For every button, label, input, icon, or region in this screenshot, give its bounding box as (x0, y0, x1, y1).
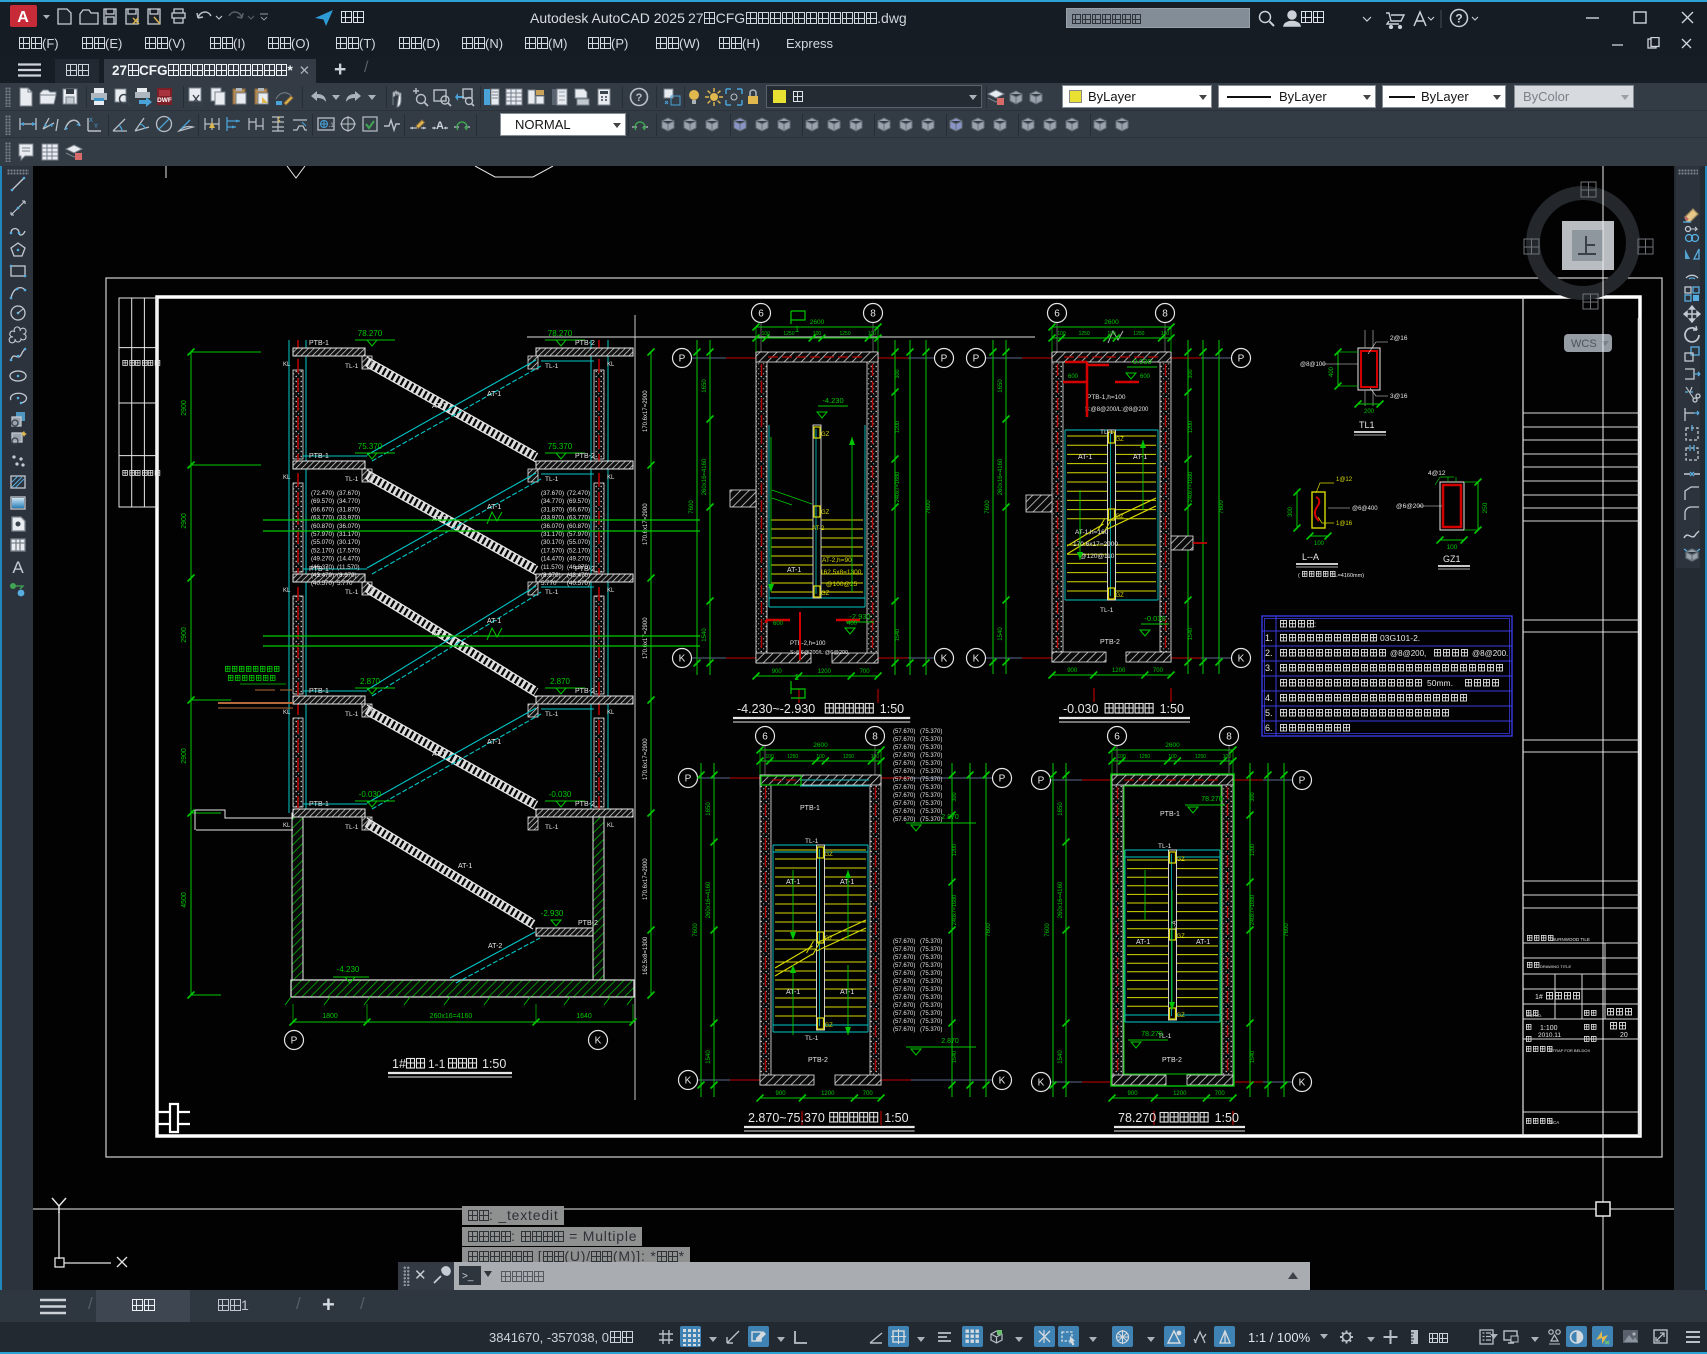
svg-text:78.270: 78.270 (1141, 1031, 1163, 1038)
svg-text:PTB-1: PTB-1 (1160, 811, 1180, 818)
svg-text:2600: 2600 (813, 742, 828, 749)
svg-text:400: 400 (1329, 366, 1335, 377)
svg-text:1800: 1800 (322, 1013, 338, 1020)
svg-text:240x7=1680: 240x7=1680 (895, 472, 901, 502)
svg-text:PTB-1: PTB-1 (309, 340, 329, 347)
svg-text:2.870: 2.870 (550, 677, 571, 686)
svg-text:240x7=1680: 240x7=1680 (1188, 472, 1194, 502)
svg-text:2.: 2. (1265, 648, 1273, 658)
svg-text:AT-1: AT-1 (840, 879, 854, 886)
svg-text:2600: 2600 (810, 319, 825, 326)
svg-text:162.5x8=1300: 162.5x8=1300 (643, 936, 649, 975)
svg-text:TL-1: TL-1 (345, 476, 359, 483)
svg-text:AT-1: AT-1 (432, 403, 446, 410)
svg-text:400: 400 (847, 621, 858, 627)
svg-text:TL-1: TL-1 (545, 824, 559, 831)
svg-text:(57.970): (57.970) (311, 531, 334, 538)
svg-text:170.6x17=2900: 170.6x17=2900 (643, 390, 649, 432)
svg-text:(57.670): (57.670) (893, 987, 915, 993)
svg-text::L=4160mm): :L=4160mm) (1333, 573, 1364, 579)
svg-text:WCS: WCS (1571, 338, 1597, 350)
svg-text:4500: 4500 (181, 892, 188, 908)
svg-text:PTB-2: PTB-2 (1162, 1057, 1182, 1064)
svg-text:100: 100 (1161, 331, 1170, 337)
svg-text::: : (1314, 620, 1316, 629)
svg-text:2900: 2900 (181, 627, 188, 643)
svg-text:L-A: L-A (1172, 921, 1178, 930)
svg-text:-4.230~-2.930: -4.230~-2.930 (737, 702, 815, 716)
svg-text:AT-2: AT-2 (488, 943, 502, 950)
svg-text:1:100: 1:100 (1540, 1025, 1558, 1032)
svg-text:4@12: 4@12 (1428, 470, 1446, 477)
svg-text:78.270: 78.270 (1201, 796, 1223, 803)
svg-text:GZ: GZ (1177, 857, 1186, 863)
svg-text:1200: 1200 (821, 1091, 835, 1097)
svg-text:50mm.: 50mm. (1427, 678, 1453, 688)
svg-text:(11.570): (11.570) (541, 564, 564, 571)
svg-text:KL: KL (607, 588, 615, 594)
svg-text:A: A (12, 558, 24, 577)
svg-text:AT-1: AT-1 (432, 751, 446, 758)
svg-text:KL: KL (283, 823, 291, 829)
svg-text:(75.370): (75.370) (920, 801, 942, 807)
svg-text:KL: KL (607, 475, 615, 481)
svg-text:TL1: TL1 (1359, 420, 1375, 430)
svg-text:100: 100 (813, 331, 822, 337)
svg-text:78.270: 78.270 (1118, 1111, 1156, 1125)
svg-text:A: A (436, 120, 444, 132)
svg-text:(11.570): (11.570) (337, 564, 360, 571)
svg-text:300: 300 (895, 369, 901, 378)
svg-text:KL: KL (607, 710, 615, 716)
svg-text:(37.670): (37.670) (541, 490, 564, 497)
svg-text:5.770: 5.770 (337, 580, 353, 587)
svg-text:AT-1: AT-1 (1078, 454, 1092, 461)
svg-text:?: ? (1455, 12, 1462, 26)
svg-text:(57.670): (57.670) (893, 1027, 915, 1033)
svg-text:AT-1: AT-1 (840, 989, 854, 996)
svg-text:AT-1: AT-1 (487, 618, 501, 625)
svg-text:1:50: 1:50 (884, 1111, 908, 1125)
svg-text:260x16=4160: 260x16=4160 (430, 1013, 473, 1020)
svg-text:100: 100 (1118, 754, 1127, 760)
svg-text:(14.470): (14.470) (541, 556, 564, 563)
svg-text:(57.670): (57.670) (893, 745, 915, 751)
svg-text:1200: 1200 (952, 844, 958, 856)
svg-text:100: 100 (871, 754, 880, 760)
svg-text:2.870: 2.870 (941, 1038, 959, 1045)
svg-text:600: 600 (773, 621, 784, 627)
svg-text:GZ: GZ (821, 510, 830, 516)
svg-text:AT-1: AT-1 (1136, 939, 1150, 946)
svg-text:2600: 2600 (1165, 742, 1180, 749)
svg-text:03G101-2.: 03G101-2. (1380, 633, 1420, 643)
svg-text:PTB-2,h=100: PTB-2,h=100 (790, 641, 826, 647)
svg-text:1250: 1250 (1195, 754, 1206, 760)
svg-text:8: 8 (872, 732, 878, 743)
svg-text:(57.670): (57.670) (893, 939, 915, 945)
svg-text:(75.370): (75.370) (920, 777, 942, 783)
svg-text:GZ: GZ (825, 1023, 834, 1029)
svg-text:4.: 4. (1265, 693, 1273, 703)
svg-text:7600: 7600 (985, 500, 991, 514)
svg-text:2600: 2600 (1104, 319, 1119, 326)
svg-text:STRAP FOR BELDOX: STRAP FOR BELDOX (1550, 1048, 1590, 1053)
svg-text:100: 100 (1057, 331, 1066, 337)
svg-text:(31.870): (31.870) (337, 506, 360, 513)
svg-text:(57.670): (57.670) (893, 793, 915, 799)
svg-text:TL-1: TL-1 (345, 363, 359, 370)
svg-text:(75.370): (75.370) (920, 1003, 942, 1009)
svg-text:GZ: GZ (1177, 934, 1186, 940)
svg-text:PTB-2: PTB-2 (575, 453, 595, 460)
svg-text:(57.670): (57.670) (893, 995, 915, 1001)
svg-text:TL-1: TL-1 (545, 476, 559, 483)
svg-text:SCA: SCA (1550, 1120, 1559, 1125)
svg-text:75.370: 75.370 (548, 442, 573, 451)
svg-text:@8@200,: @8@200, (1390, 649, 1426, 658)
svg-text:1540: 1540 (706, 1050, 712, 1064)
svg-text:KL: KL (283, 475, 291, 481)
svg-text:900: 900 (1067, 668, 1078, 674)
svg-text:TL-1: TL-1 (1158, 843, 1172, 850)
svg-text:1540: 1540 (1188, 628, 1194, 640)
svg-text:1@16: 1@16 (1336, 521, 1353, 527)
svg-text:600: 600 (1140, 374, 1151, 380)
svg-text:(75.370): (75.370) (920, 1011, 942, 1017)
svg-text:(57.670): (57.670) (893, 1003, 915, 1009)
svg-text:-0.030: -0.030 (359, 790, 382, 799)
svg-text:(75.370): (75.370) (920, 793, 942, 799)
svg-text:(43.470): (43.470) (311, 572, 334, 579)
svg-text:900: 900 (1128, 1091, 1139, 1097)
svg-text:100: 100 (1314, 541, 1325, 547)
svg-text:300: 300 (1188, 369, 1194, 378)
svg-text:(69.570): (69.570) (311, 498, 334, 505)
svg-text:GZ: GZ (821, 591, 830, 597)
svg-text:1: 1 (795, 325, 800, 334)
svg-text:(69.570): (69.570) (567, 498, 590, 505)
svg-text:78.270: 78.270 (548, 329, 573, 338)
svg-text:260x16=4160: 260x16=4160 (998, 458, 1004, 495)
svg-text:(75.370): (75.370) (920, 817, 942, 823)
svg-text:1:50: 1:50 (482, 1057, 506, 1071)
svg-text:@8@100: @8@100 (1300, 362, 1326, 368)
svg-text:2.870~75.370: 2.870~75.370 (748, 1111, 825, 1125)
svg-text:PTB-2: PTB-2 (578, 920, 598, 927)
svg-text:2010.11: 2010.11 (1538, 1032, 1561, 1039)
svg-text:(75.370): (75.370) (920, 729, 942, 735)
svg-text:78.270: 78.270 (358, 329, 383, 338)
svg-text:(75.370): (75.370) (920, 987, 942, 993)
svg-text:1:50: 1:50 (1160, 702, 1184, 716)
svg-text:GZ1: GZ1 (1443, 554, 1461, 564)
svg-text:(75.370): (75.370) (920, 947, 942, 953)
svg-text:100: 100 (1107, 331, 1116, 337)
svg-text:K: K (941, 654, 948, 665)
svg-text:(57.670): (57.670) (893, 785, 915, 791)
svg-text:(75.370): (75.370) (920, 939, 942, 945)
svg-text:PTB-2: PTB-2 (1100, 639, 1120, 646)
svg-text:K: K (595, 1036, 602, 1047)
svg-text:240x7=1680: 240x7=1680 (1250, 895, 1256, 925)
svg-text:PTB-2: PTB-2 (575, 801, 595, 808)
svg-text:P: P (1038, 776, 1045, 787)
svg-text:TL-1: TL-1 (545, 589, 559, 596)
svg-text:1200: 1200 (1173, 1091, 1187, 1097)
svg-text:250: 250 (1482, 502, 1489, 513)
svg-text:@120@110: @120@110 (1080, 553, 1115, 560)
svg-text:(57.670): (57.670) (893, 947, 915, 953)
svg-text:(75.370): (75.370) (920, 761, 942, 767)
svg-text:300: 300 (952, 792, 958, 801)
svg-text:TL-1: TL-1 (1100, 429, 1114, 436)
svg-text:162.5x8=1300: 162.5x8=1300 (820, 569, 862, 576)
svg-text:(17.570): (17.570) (337, 547, 360, 554)
svg-text:(31.870): (31.870) (541, 506, 564, 513)
svg-text:1640: 1640 (576, 1013, 592, 1020)
svg-text:7600: 7600 (986, 923, 992, 937)
svg-text:5.770: 5.770 (541, 580, 557, 587)
svg-text:P: P (1299, 776, 1306, 787)
svg-text:AT-1: AT-1 (487, 739, 501, 746)
svg-text:GZ: GZ (1116, 437, 1125, 443)
svg-text:700: 700 (860, 669, 871, 675)
svg-text:1650: 1650 (1058, 802, 1064, 816)
svg-text:TL-1: TL-1 (345, 711, 359, 718)
svg-text:L--A: L--A (1302, 552, 1319, 562)
svg-text:2900: 2900 (181, 513, 188, 529)
svg-text:1650: 1650 (998, 379, 1004, 393)
svg-text:BURNWOOD TILE: BURNWOOD TILE (1552, 937, 1590, 942)
svg-text:KL: KL (607, 823, 615, 829)
svg-text:PTB-2: PTB-2 (575, 688, 595, 695)
svg-text:700: 700 (863, 1091, 874, 1097)
svg-text:(57.670): (57.670) (893, 729, 915, 735)
svg-text:20: 20 (1620, 1032, 1628, 1039)
svg-text:(34.770): (34.770) (541, 498, 564, 505)
svg-text:(57.670): (57.670) (893, 1011, 915, 1017)
svg-text:(46.370): (46.370) (311, 564, 334, 571)
svg-text:-0.030: -0.030 (1144, 614, 1165, 623)
svg-text:AT-1: AT-1 (487, 391, 501, 398)
svg-text:-0.030: -0.030 (1063, 702, 1098, 716)
svg-text:-2.930: -2.930 (541, 909, 564, 918)
svg-text:(72.470): (72.470) (311, 490, 334, 497)
svg-text:@6@200: @6@200 (1396, 503, 1424, 510)
svg-text:DRAWING TITLE: DRAWING TITLE (1540, 964, 1571, 969)
svg-text:KL: KL (283, 588, 291, 594)
svg-text:AT-2: AT-2 (812, 526, 825, 532)
svg-text:(57.670): (57.670) (893, 737, 915, 743)
svg-text:1540: 1540 (1250, 1051, 1256, 1063)
svg-text:AT-1: AT-1 (458, 863, 472, 870)
svg-text:(14.470): (14.470) (337, 556, 360, 563)
svg-text:(52.170): (52.170) (567, 547, 590, 554)
svg-text:TL-1: TL-1 (345, 824, 359, 831)
svg-text:AT-2,h=90: AT-2,h=90 (822, 557, 852, 564)
svg-text:8: 8 (1162, 309, 1168, 320)
svg-text:6: 6 (758, 309, 764, 320)
svg-text:600: 600 (1068, 374, 1079, 380)
svg-text:PTB-1: PTB-1 (309, 688, 329, 695)
svg-text:(75.370): (75.370) (920, 785, 942, 791)
svg-text:2900: 2900 (181, 748, 188, 764)
svg-text:PTB-1,h=100: PTB-1,h=100 (1087, 394, 1126, 401)
svg-text:7600: 7600 (693, 923, 699, 937)
svg-text:P: P (679, 354, 686, 365)
svg-text:-0.030: -0.030 (549, 790, 572, 799)
svg-text:@100@25: @100@25 (826, 581, 858, 588)
svg-text:TL-1: TL-1 (545, 363, 559, 370)
svg-text:-4.230: -4.230 (337, 965, 360, 974)
svg-text:1650: 1650 (702, 379, 708, 393)
svg-text:1540: 1540 (998, 627, 1004, 641)
svg-text:100: 100 (766, 754, 775, 760)
svg-text:KL: KL (283, 710, 291, 716)
svg-text:1200: 1200 (895, 421, 901, 433)
svg-text:3@16: 3@16 (1390, 393, 1408, 400)
svg-text:100: 100 (816, 754, 825, 760)
svg-text:700: 700 (1153, 668, 1164, 674)
svg-text:(17.570): (17.570) (541, 547, 564, 554)
svg-text:1250: 1250 (1133, 331, 1144, 337)
svg-text:170.6x17=2900: 170.6x17=2900 (643, 503, 649, 545)
svg-text:1250: 1250 (783, 331, 794, 337)
svg-text:260x16=4160: 260x16=4160 (702, 458, 708, 495)
svg-text:1@12: 1@12 (1336, 477, 1353, 483)
svg-text:900: 900 (776, 1091, 787, 1097)
svg-text:(57.970): (57.970) (567, 531, 590, 538)
svg-text:TL-1: TL-1 (1100, 607, 1114, 614)
svg-text:1:50: 1:50 (880, 702, 904, 716)
svg-text:(66.670): (66.670) (567, 506, 590, 513)
svg-text:(30.170): (30.170) (541, 539, 564, 546)
svg-text:@6@400: @6@400 (1352, 506, 1378, 512)
svg-text:P: P (291, 1036, 298, 1047)
svg-text:DWF: DWF (157, 97, 172, 104)
svg-text:170.6x17=2900: 170.6x17=2900 (643, 858, 649, 900)
svg-text:100: 100 (762, 331, 771, 337)
svg-text:(75.370): (75.370) (920, 1019, 942, 1025)
svg-text:AT-1: AT-1 (1196, 939, 1210, 946)
svg-text:(57.670): (57.670) (893, 817, 915, 823)
svg-text:7600: 7600 (1045, 923, 1051, 937)
svg-text:(60.870): (60.870) (311, 523, 334, 530)
svg-text:K: K (973, 654, 980, 665)
svg-text:(57.670): (57.670) (893, 801, 915, 807)
svg-text:TL-1: TL-1 (545, 711, 559, 718)
svg-text:100: 100 (1447, 544, 1458, 551)
svg-text:(57.670): (57.670) (893, 971, 915, 977)
svg-text:(75.370): (75.370) (920, 979, 942, 985)
svg-text:1200: 1200 (1250, 844, 1256, 856)
svg-text:(57.670): (57.670) (893, 979, 915, 985)
svg-text:75.370: 75.370 (358, 442, 383, 451)
svg-text:(55.070): (55.070) (567, 539, 590, 546)
svg-text:AT-1: AT-1 (787, 567, 801, 574)
svg-text:-0.030: -0.030 (1130, 357, 1151, 366)
svg-text:(75.370): (75.370) (920, 745, 942, 751)
svg-text:(57.670): (57.670) (893, 809, 915, 815)
svg-text:(57.670): (57.670) (893, 963, 915, 969)
svg-text:(75.370): (75.370) (920, 971, 942, 977)
svg-text:(36.070): (36.070) (337, 523, 360, 530)
svg-text:(37.670): (37.670) (337, 490, 360, 497)
svg-text:(57.670): (57.670) (893, 769, 915, 775)
svg-text:1650: 1650 (706, 802, 712, 816)
svg-text:(8.670): (8.670) (541, 572, 561, 579)
svg-text:1.: 1. (1265, 633, 1273, 643)
svg-text:(52.170): (52.170) (311, 547, 334, 554)
svg-text:7600: 7600 (926, 500, 932, 514)
svg-text:(60.870): (60.870) (567, 523, 590, 530)
svg-text:(57.670): (57.670) (893, 761, 915, 767)
svg-text:240x7=1680: 240x7=1680 (952, 895, 958, 925)
svg-text:K: K (1299, 1078, 1306, 1089)
svg-text:AT-1: AT-1 (1133, 454, 1147, 461)
svg-text:-4.230: -4.230 (822, 396, 843, 405)
svg-text:P: P (685, 774, 692, 785)
svg-text:K: K (999, 1076, 1006, 1087)
svg-text:(75.370): (75.370) (920, 809, 942, 815)
svg-text:(75.370): (75.370) (920, 737, 942, 743)
svg-text:(55.070): (55.070) (311, 539, 334, 546)
svg-text:(49.270): (49.270) (567, 556, 590, 563)
svg-text:GZ: GZ (825, 852, 834, 858)
svg-text:1: 1 (795, 673, 800, 682)
svg-text:100: 100 (1168, 754, 1177, 760)
svg-text:GZ: GZ (1116, 593, 1125, 599)
svg-text:(57.670): (57.670) (893, 1019, 915, 1025)
svg-text:(46.370): (46.370) (567, 564, 590, 571)
svg-text:(75.370): (75.370) (920, 963, 942, 969)
svg-text:(75.370): (75.370) (920, 995, 942, 1001)
svg-text:7600: 7600 (1284, 923, 1290, 937)
svg-text:K: K (679, 654, 686, 665)
svg-text:1#: 1# (392, 1057, 406, 1071)
svg-text:KL: KL (607, 362, 615, 368)
svg-text:6: 6 (762, 732, 768, 743)
svg-text:8: 8 (1226, 732, 1232, 743)
svg-text:(57.670): (57.670) (893, 777, 915, 783)
svg-text:PTB-1: PTB-1 (309, 801, 329, 808)
svg-text:(57.670): (57.670) (893, 753, 915, 759)
svg-text:JOB NO.: JOB NO. (1526, 1013, 1542, 1018)
svg-text:(75.370): (75.370) (920, 753, 942, 759)
svg-text:1250: 1250 (1079, 331, 1090, 337)
svg-text:170.6x17=2900: 170.6x17=2900 (643, 738, 649, 780)
svg-text:A: A (17, 9, 29, 26)
svg-text:(66.670): (66.670) (311, 506, 334, 513)
svg-text:2900: 2900 (181, 400, 188, 416)
svg-text:1200: 1200 (1112, 668, 1126, 674)
svg-text:7600: 7600 (1219, 500, 1225, 514)
svg-text:.1: .1 (329, 122, 335, 129)
svg-text:300: 300 (1288, 506, 1294, 517)
svg-text:P: P (999, 774, 1006, 785)
svg-text:GZ: GZ (821, 432, 830, 438)
svg-text:PTB-1: PTB-1 (309, 453, 329, 460)
svg-text:(49.270): (49.270) (311, 556, 334, 563)
svg-text:(31.170): (31.170) (337, 531, 360, 538)
svg-text:(34.770): (34.770) (337, 498, 360, 505)
svg-text:(75.370): (75.370) (920, 955, 942, 961)
svg-text:TL-1: TL-1 (805, 838, 819, 845)
svg-text:P: P (941, 354, 948, 365)
svg-text:2.870: 2.870 (941, 814, 959, 821)
svg-text:P: P (1238, 354, 1245, 365)
